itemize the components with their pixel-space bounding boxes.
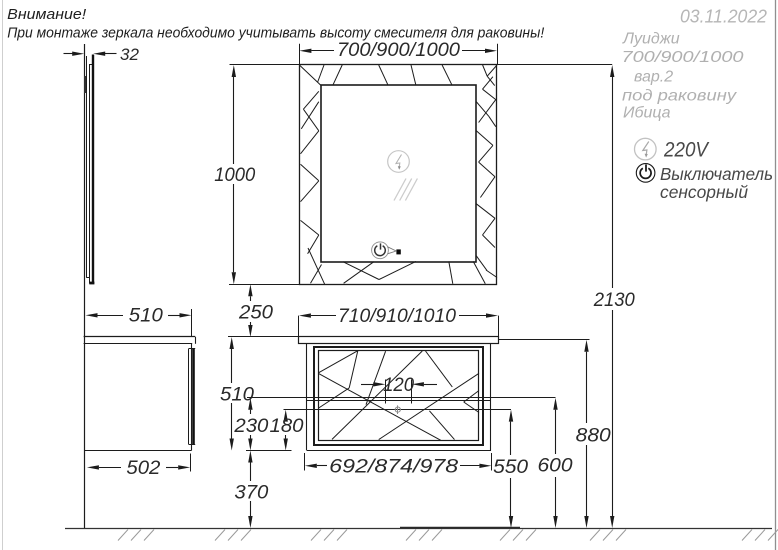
svg-text:180: 180	[270, 416, 304, 437]
svg-text:510: 510	[220, 384, 254, 405]
svg-text:550: 550	[493, 457, 528, 478]
svg-text:Внимание!: Внимание!	[7, 7, 86, 23]
svg-text:370: 370	[234, 482, 268, 503]
svg-text:1000: 1000	[214, 165, 255, 186]
svg-text:вар.2: вар.2	[634, 69, 673, 86]
svg-text:120: 120	[383, 375, 414, 396]
svg-text:Выключатель: Выключатель	[660, 164, 773, 184]
svg-text:2130: 2130	[593, 290, 635, 311]
svg-text:Ибица: Ибица	[623, 105, 671, 122]
svg-text:32: 32	[120, 45, 139, 64]
svg-text:250: 250	[238, 302, 274, 323]
svg-text:700/900/1000: 700/900/1000	[337, 40, 460, 61]
svg-text:230: 230	[233, 416, 269, 437]
svg-text:880: 880	[576, 426, 611, 447]
svg-text:сенсорный: сенсорный	[660, 182, 748, 202]
svg-text:03.11.2022: 03.11.2022	[680, 7, 767, 27]
svg-text:600: 600	[538, 455, 573, 476]
svg-text:При монтаже зеркала необходимо: При монтаже зеркала необходимо учитывать…	[7, 25, 544, 41]
svg-text:510: 510	[129, 306, 163, 327]
svg-text:220V: 220V	[663, 139, 710, 162]
svg-text:502: 502	[126, 458, 160, 479]
svg-text:под раковину: под раковину	[622, 88, 737, 105]
svg-text:710/910/1010: 710/910/1010	[338, 306, 456, 327]
svg-text:692/874/978: 692/874/978	[329, 456, 459, 477]
svg-text:Луиджи: Луиджи	[622, 31, 680, 48]
svg-text:700/900/1000: 700/900/1000	[622, 49, 744, 66]
